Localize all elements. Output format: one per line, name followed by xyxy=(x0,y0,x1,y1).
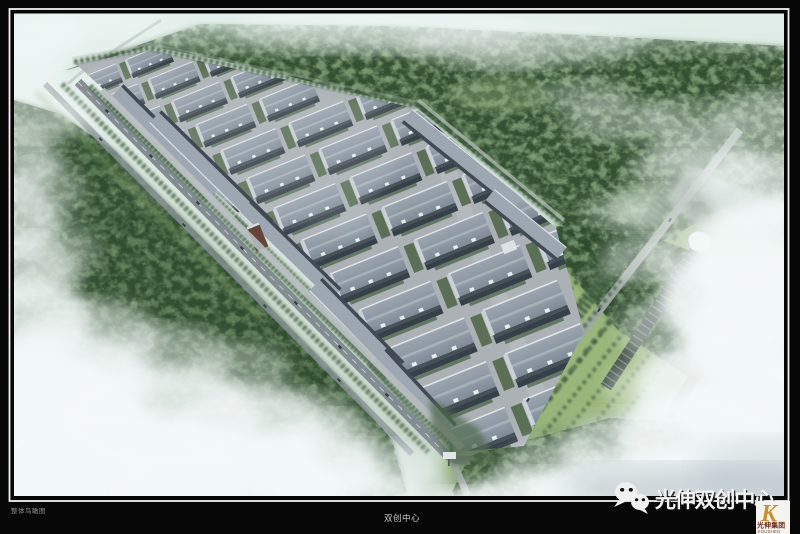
svg-text:整体鸟瞰图: 整体鸟瞰图 xyxy=(11,506,46,515)
svg-text:双创中心: 双创中心 xyxy=(384,513,420,523)
svg-text:KOUSHEN: KOUSHEN xyxy=(758,529,781,534)
